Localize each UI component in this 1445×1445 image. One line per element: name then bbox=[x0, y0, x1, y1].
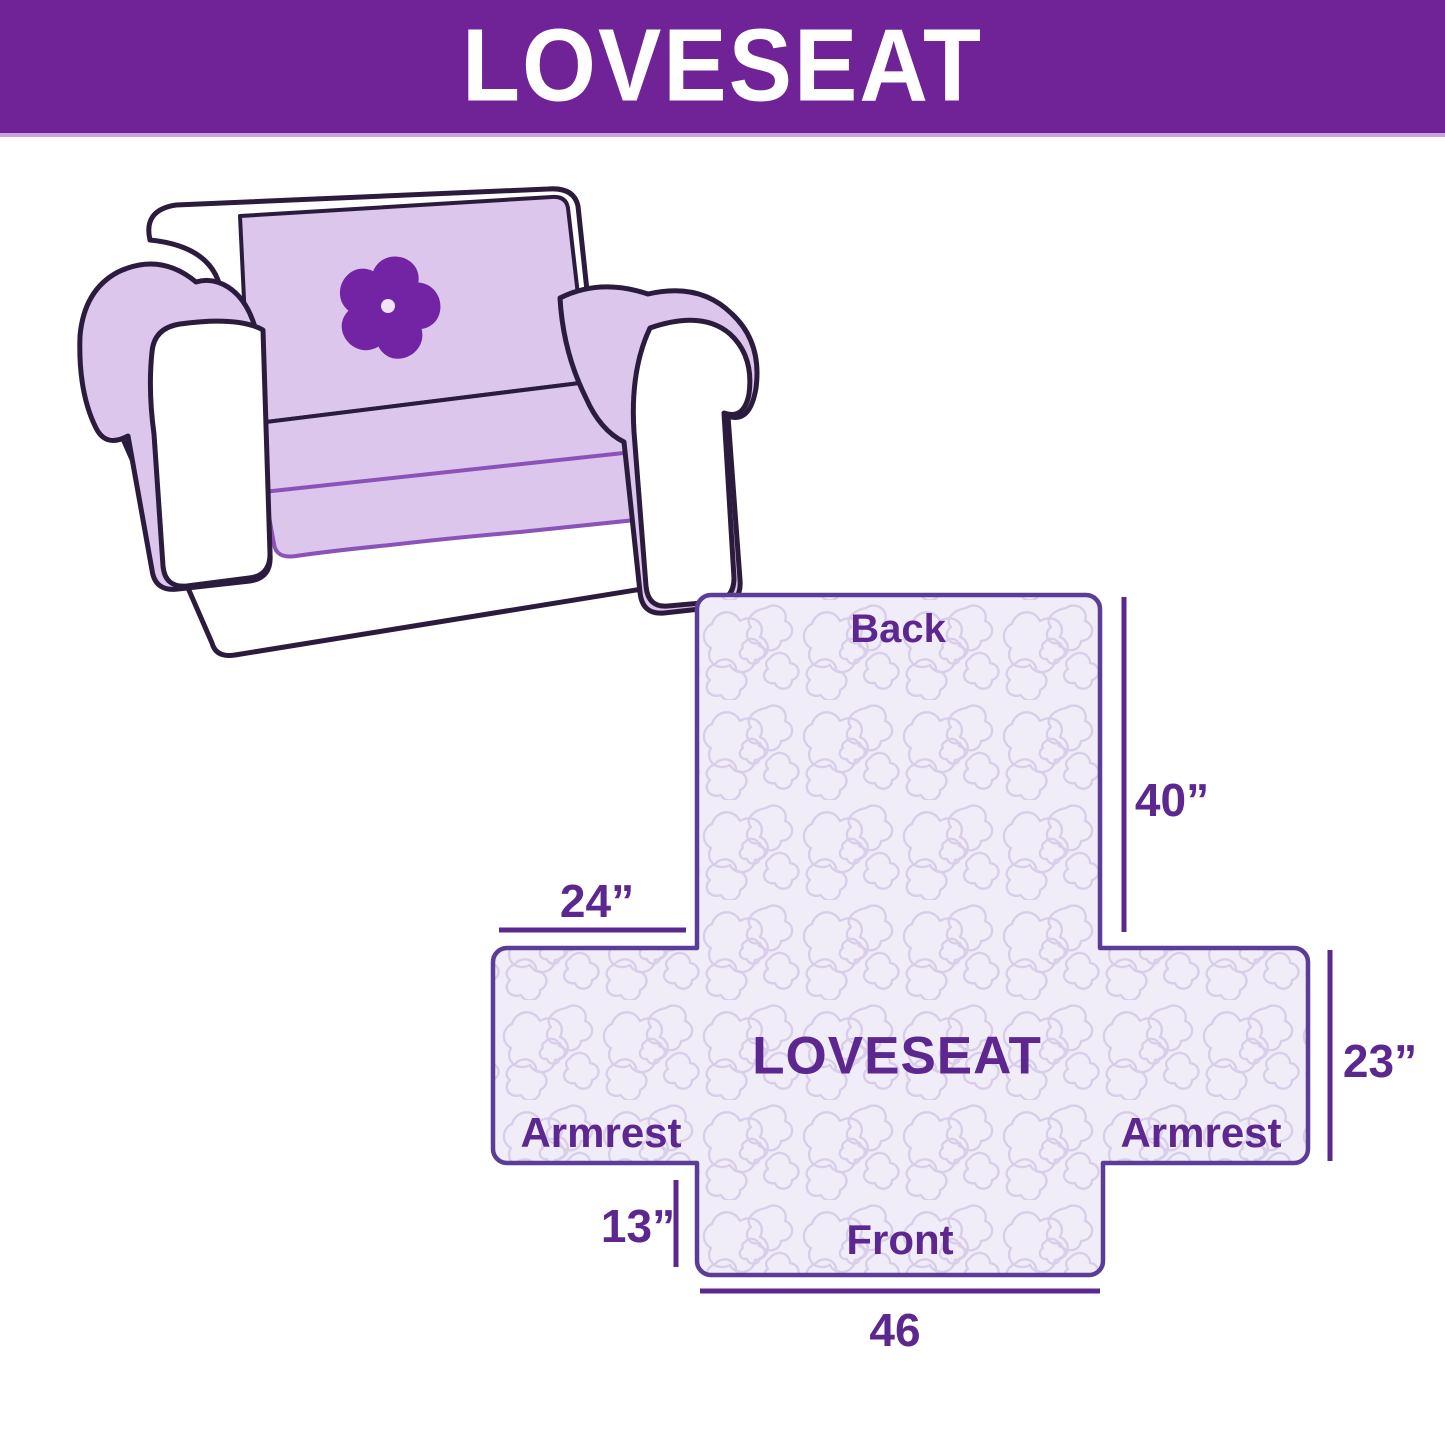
sofa-illustration bbox=[80, 189, 757, 656]
cover-shape-quilt-texture bbox=[493, 595, 1308, 1275]
back-height-dimension: 40” bbox=[1135, 777, 1209, 823]
cover-diagram bbox=[493, 595, 1330, 1291]
armrest-right-label: Armrest bbox=[1120, 1112, 1281, 1154]
armrest-width-dimension: 24” bbox=[560, 878, 634, 924]
front-section-label: Front bbox=[846, 1219, 953, 1261]
diagram-center-label: LOVESEAT bbox=[752, 1030, 1042, 1083]
page: LOVESEAT bbox=[0, 0, 1445, 1445]
front-width-dimension: 46 bbox=[869, 1307, 920, 1353]
back-section-label: Back bbox=[850, 609, 946, 649]
side-height-dimension: 23” bbox=[1343, 1038, 1417, 1084]
front-drop-dimension: 13” bbox=[601, 1203, 675, 1249]
artwork-canvas bbox=[0, 0, 1445, 1445]
armrest-left-label: Armrest bbox=[520, 1112, 681, 1154]
sofa-left-arm-front bbox=[150, 321, 270, 586]
